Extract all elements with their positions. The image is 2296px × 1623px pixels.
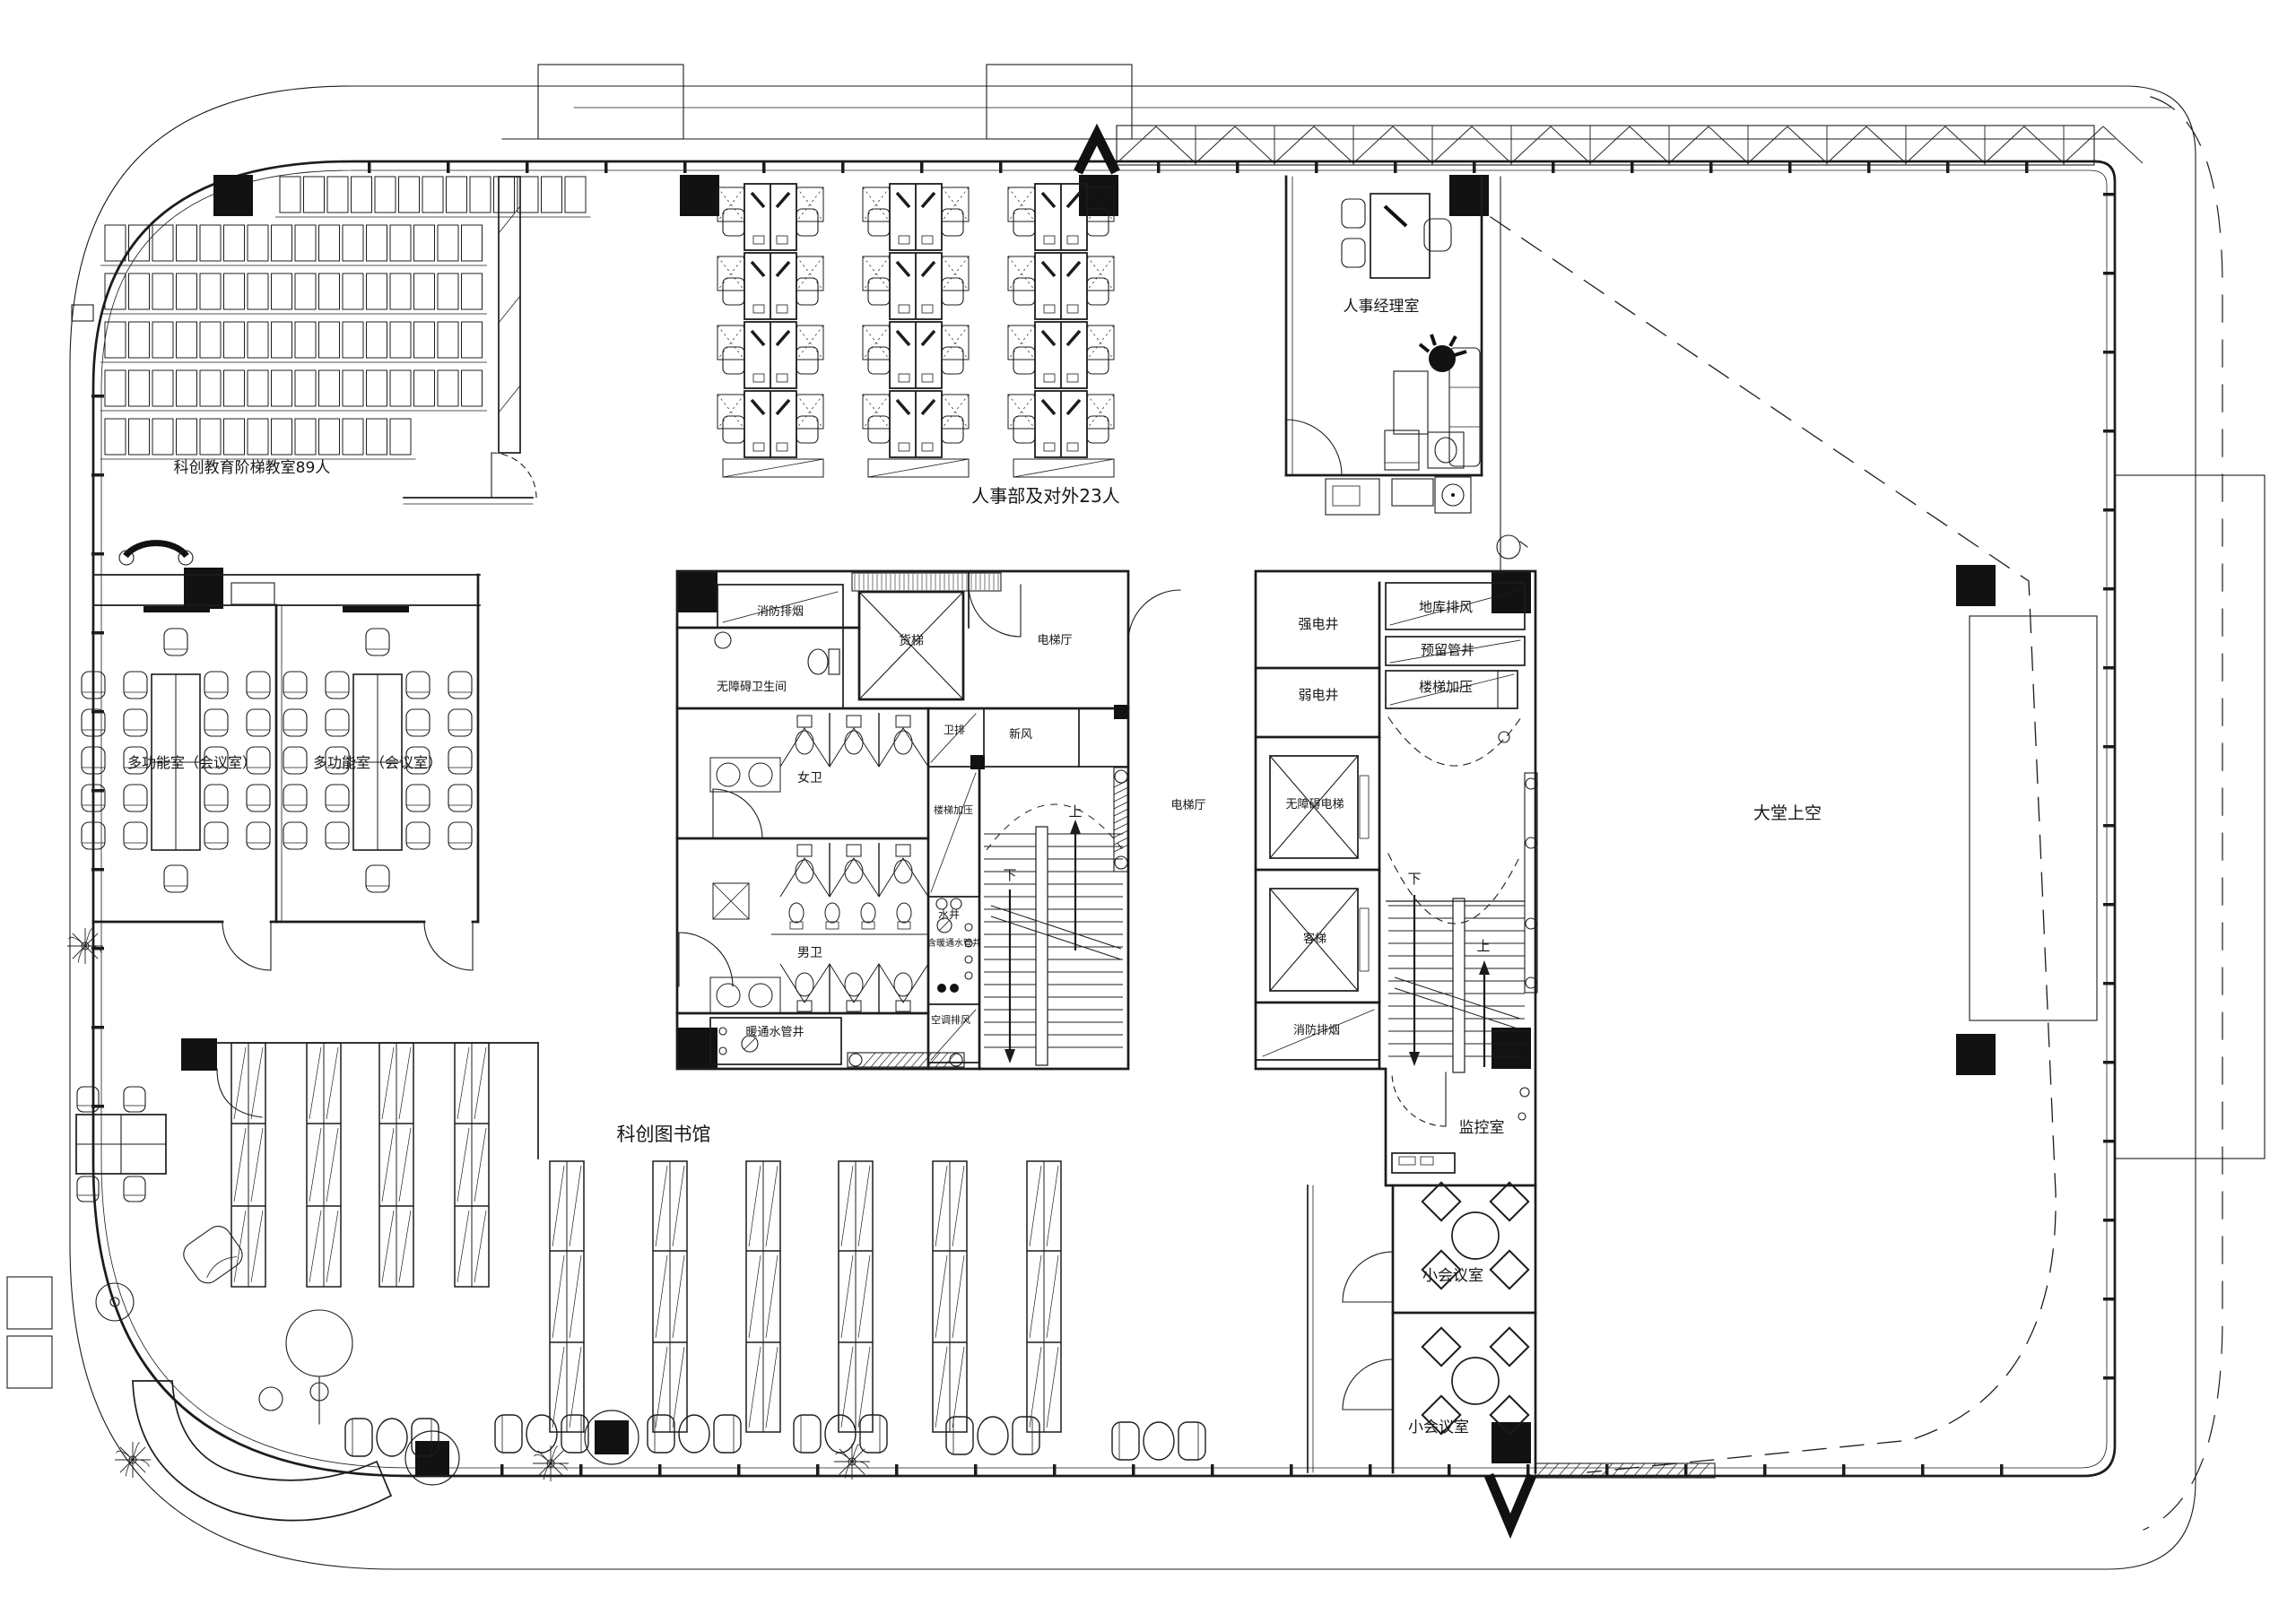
manager-desk (1370, 194, 1430, 278)
door-swing (969, 585, 1021, 637)
door-swing (424, 922, 473, 970)
label-men-wc: 男卫 (797, 946, 822, 960)
label-library: 科创图书馆 (617, 1124, 711, 1145)
label-classroom: 科创教育阶梯教室89人 (174, 459, 331, 477)
south-entrance-arrow-icon (1489, 1475, 1532, 1526)
entrance-arrows (1078, 135, 1532, 1526)
label-stair-pressure-right: 楼梯加压 (1419, 679, 1473, 695)
core-right (1256, 571, 1537, 1185)
lobby-opening-edge (1970, 616, 2097, 1020)
stool (259, 1387, 283, 1410)
building-shell (7, 65, 2265, 1569)
label-reserved-shaft: 预留管井 (1421, 642, 1474, 658)
coffee-table (1394, 371, 1428, 434)
door-swing (1392, 1072, 1446, 1126)
sofa (1449, 348, 1480, 466)
classroom-area (100, 177, 591, 504)
label-multi-room-1: 多功能室（会议室） (127, 754, 257, 771)
floor-plan-sheet: 科创教育阶梯教室89人人事部及对外23人人事经理室多功能室（会议室）多功能室（会… (0, 0, 2296, 1623)
floor-plan-drawing: 科创教育阶梯教室89人人事部及对外23人人事经理室多功能室（会议室）多功能室（会… (0, 0, 2296, 1623)
exterior-box-1 (7, 1277, 52, 1329)
monitor-desk (1392, 1153, 1455, 1173)
label-down-left: 下 (1003, 867, 1016, 883)
label-accessible-toilet: 无障碍卫生间 (717, 681, 787, 694)
door-swing (1343, 1359, 1393, 1410)
hr-manager-office (1286, 177, 1527, 572)
tv-screen (343, 606, 409, 612)
north-entrance-arrow-icon (1078, 135, 1116, 172)
label-weak-electric: 弱电井 (1298, 687, 1338, 703)
printer (1392, 479, 1433, 506)
open-office-workstations (717, 184, 1114, 477)
hvac-pipe-shaft-room (710, 1018, 841, 1064)
label-hvac-water-pipe: 含暖通水管井 (927, 937, 981, 949)
exterior-canopy (2115, 475, 2265, 1159)
label-hr-office: 人事经理室 (1344, 298, 1420, 316)
classroom-east-wall (499, 177, 520, 453)
label-up-left: 上 (1068, 803, 1082, 820)
copier (1326, 479, 1379, 515)
label-up-right: 上 (1476, 938, 1490, 954)
door-swing (1343, 1252, 1393, 1302)
door-swing (491, 453, 536, 498)
label-small-meeting-1: 小会议室 (1422, 1267, 1483, 1285)
label-stair-pressure-left: 楼梯加压 (934, 803, 973, 816)
round-table (1452, 1212, 1499, 1259)
site-dashed-line (2144, 97, 2222, 1530)
plant-icon (1429, 345, 1456, 372)
guest-chair (1342, 239, 1365, 267)
label-freight-elevator: 货梯 (899, 633, 924, 648)
door-swing (1128, 590, 1180, 642)
label-toilet-exhaust: 卫排 (944, 724, 965, 736)
floor-above-dashed-line (1491, 217, 2056, 1472)
label-water-shaft: 水井 (938, 908, 960, 921)
label-down-right: 下 (1407, 871, 1421, 887)
exterior-box-2 (7, 1336, 52, 1388)
label-ac-exhaust: 空调排风 (931, 1013, 970, 1026)
wall-door-mark (72, 305, 93, 321)
truss-band (1117, 126, 2094, 165)
label-basement-exhaust: 地库排风 (1419, 599, 1473, 615)
hanging-lamp (286, 1310, 352, 1376)
door-swing (222, 922, 271, 970)
door-swing (1286, 420, 1342, 475)
label-hr-department: 人事部及对外23人 (971, 485, 1119, 507)
round-table (1452, 1358, 1499, 1404)
label-fire-smoke-right: 消防排烟 (1293, 1023, 1340, 1037)
label-fresh-air: 新风 (1009, 727, 1032, 742)
outer-boundary (70, 86, 2196, 1569)
toilet-icon (808, 649, 828, 674)
label-women-wc: 女卫 (797, 770, 822, 785)
core-left (677, 571, 1180, 1069)
label-monitor-room: 监控室 (1459, 1119, 1505, 1137)
label-fire-smoke-left: 消防排烟 (757, 604, 804, 619)
small-meeting-rooms (1308, 1183, 1715, 1478)
label-lobby-void: 大堂上空 (1753, 803, 1822, 823)
roof-vent-box-2 (987, 65, 1132, 139)
label-small-meeting-2: 小会议室 (1408, 1419, 1469, 1436)
wall-grille (231, 583, 274, 604)
door-swing (679, 933, 733, 986)
room-labels: 科创教育阶梯教室89人人事部及对外23人人事经理室多功能室（会议室）多功能室（会… (127, 298, 1822, 1436)
library-area (67, 928, 1205, 1521)
label-elevator-hall-top: 电梯厅 (1037, 634, 1072, 647)
label-strong-electric: 强电井 (1298, 616, 1338, 632)
label-multi-room-2: 多功能室（会议室） (313, 754, 442, 771)
label-accessible-elevator: 无障碍电梯 (1285, 798, 1344, 811)
door-swing (713, 789, 762, 838)
armchair (178, 1221, 247, 1288)
office-chair (1424, 219, 1451, 251)
phone-icon (126, 543, 187, 556)
roof-vent-box-1 (538, 65, 683, 139)
guest-chair (1342, 199, 1365, 228)
sink-icon (715, 632, 731, 648)
label-passenger-elevator: 客梯 (1303, 932, 1326, 946)
tv-screen (143, 606, 210, 612)
label-hvac-pipe-shaft: 暖通水管井 (745, 1026, 804, 1039)
label-elevator-hall-right: 电梯厅 (1170, 799, 1205, 812)
cabinet (1385, 430, 1419, 470)
